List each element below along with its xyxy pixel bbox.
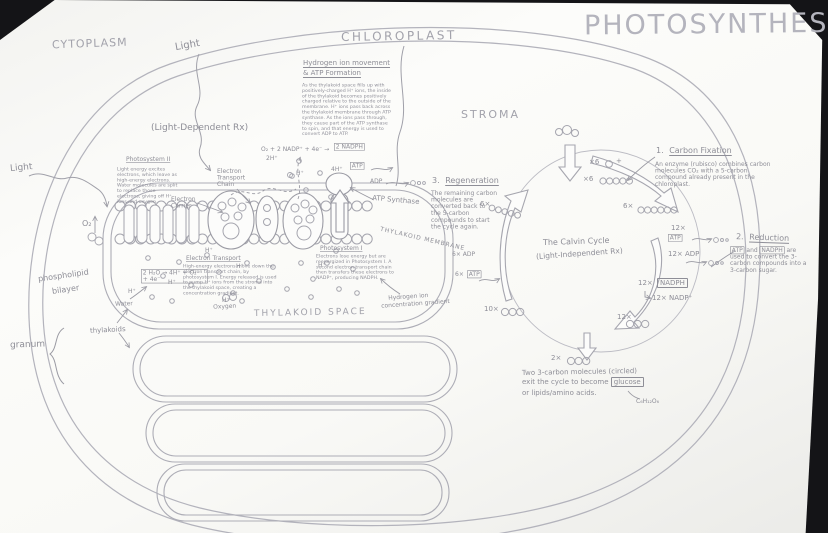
photosystem1-title: Photosystem I bbox=[320, 245, 362, 252]
hydrogen-movement-text: As the thylakoid space fills up with pos… bbox=[302, 83, 394, 137]
regeneration-step: 3. Regeneration bbox=[432, 177, 499, 186]
rubp-count: ×6 bbox=[583, 176, 593, 184]
thylakoid-space-label: THYLAKOID SPACE bbox=[254, 307, 367, 319]
reduction-and: and bbox=[745, 247, 760, 254]
exit-text-become: exit the cycle to become bbox=[522, 378, 611, 386]
glucose-formula: C₆H₁₂O₆ bbox=[636, 398, 659, 405]
two-hplus-label: 2H⁺ bbox=[266, 155, 278, 162]
nadph12-box: NADPH bbox=[657, 278, 688, 288]
light-dependent-label: (Light-Dependent Rx) bbox=[151, 123, 248, 133]
photosystem1-text: Electrons lose energy but are reenergize… bbox=[316, 254, 402, 281]
page-title: PHOTOSYNTHESIS bbox=[584, 9, 828, 42]
regeneration-number: 3. bbox=[432, 176, 440, 185]
light-left-label: Light bbox=[10, 162, 33, 174]
glucose-box: glucose bbox=[611, 377, 644, 387]
exit-count: 2× bbox=[551, 355, 561, 363]
hplus-label: H⁺ bbox=[296, 170, 304, 177]
atp12-box: ATP bbox=[668, 234, 683, 242]
fixation-title: Carbon Fixation bbox=[669, 146, 732, 155]
hplus-label: H⁺ bbox=[128, 288, 136, 295]
co2-count: ×6 bbox=[589, 159, 599, 167]
hplus-label: H⁺ bbox=[168, 279, 176, 286]
o2-label: O₂ bbox=[82, 220, 92, 229]
nadph-product-box: 2 NADPH bbox=[334, 143, 365, 151]
recycle-count: 10× bbox=[484, 306, 499, 314]
atp6-box: ATP bbox=[467, 270, 482, 278]
electron-carrier-label: Electron Carrier bbox=[171, 196, 208, 209]
hplus-label: H⁺ bbox=[236, 263, 244, 270]
exit-text-line2: exit the cycle to become glucose bbox=[522, 379, 644, 387]
hplus-label: H⁺ bbox=[205, 247, 213, 254]
hydrogen-movement-title2: & ATP Formation bbox=[303, 70, 361, 78]
carbon-circle-chains bbox=[489, 161, 677, 365]
cytoplasm-label: CYTOPLASM bbox=[52, 37, 128, 52]
electron-transport-chain-label: Electron Transport Chain bbox=[217, 168, 260, 188]
hplus-label: H⁺ bbox=[222, 297, 230, 304]
photosynthesis-sketch: PHOTOSYNTHESIS CYTOPLASM Light CHLOROPLA… bbox=[0, 0, 828, 533]
stroma-label: STROMA bbox=[461, 109, 520, 121]
water-split-line1: 2 H₂O → 4H⁺ + O₂ bbox=[143, 270, 206, 277]
adp12-label: 12× ADP bbox=[668, 251, 699, 259]
six-carbon-count: 6× bbox=[623, 203, 633, 211]
exit-text-line3: or lipids/amino acids. bbox=[522, 390, 597, 398]
plus-sign: + bbox=[616, 158, 622, 166]
atp6-count: 6× bbox=[455, 271, 464, 278]
fixation-step: 1. Carbon Fixation bbox=[656, 147, 732, 156]
nadph12-count: 12× bbox=[638, 279, 653, 287]
atp-synthase-complex bbox=[326, 173, 352, 239]
atp6-label: 6× ATP bbox=[455, 271, 481, 278]
adp-label: ADP bbox=[370, 178, 382, 185]
oxygen-label: Oxygen bbox=[213, 303, 236, 311]
nadph-equation: O₂ + 2 NADP⁺ + 4e⁻ → bbox=[261, 146, 329, 153]
sketch-layer bbox=[0, 0, 828, 533]
reduction-text: ATP and NADPH are used to convert the 3-… bbox=[730, 247, 808, 274]
granum-label: granum bbox=[10, 339, 45, 350]
atp-box: ATP bbox=[350, 162, 365, 170]
fixation-number: 1. bbox=[656, 146, 664, 155]
hplus-label: H⁺ bbox=[318, 262, 326, 269]
water-label: Water bbox=[115, 300, 133, 307]
reduction-title: Reduction bbox=[749, 233, 789, 243]
reduction-step: 2. Reduction bbox=[736, 233, 789, 244]
photosystem2-text: Light energy excites electrons, which le… bbox=[117, 167, 179, 205]
reduction-number: 2. bbox=[736, 232, 744, 241]
four-hplus-label: 4H⁺ bbox=[331, 166, 343, 173]
hydrogen-movement-title1: Hydrogen ion movement bbox=[303, 60, 390, 68]
nadp12-label: 12× NADP⁺ bbox=[652, 295, 692, 303]
regeneration-title: Regeneration bbox=[445, 176, 499, 185]
adp6-label: 6× ADP bbox=[452, 251, 475, 258]
co2-molecule bbox=[556, 126, 579, 137]
regeneration-text: The remaining carbon molecules are conve… bbox=[431, 190, 497, 230]
nadph12-label: 12× NADPH bbox=[638, 280, 688, 288]
atp12-count: 12× bbox=[671, 225, 686, 233]
chloroplast-label: CHLOROPLAST bbox=[341, 29, 457, 44]
photosystem2-title: Photosystem II bbox=[126, 156, 170, 163]
electron-transport-title: Electron Transport bbox=[186, 255, 241, 262]
fixation-text: An enzyme (rubisco) combines carbon mole… bbox=[655, 161, 781, 188]
three-carbon-count: 12× bbox=[617, 314, 632, 322]
